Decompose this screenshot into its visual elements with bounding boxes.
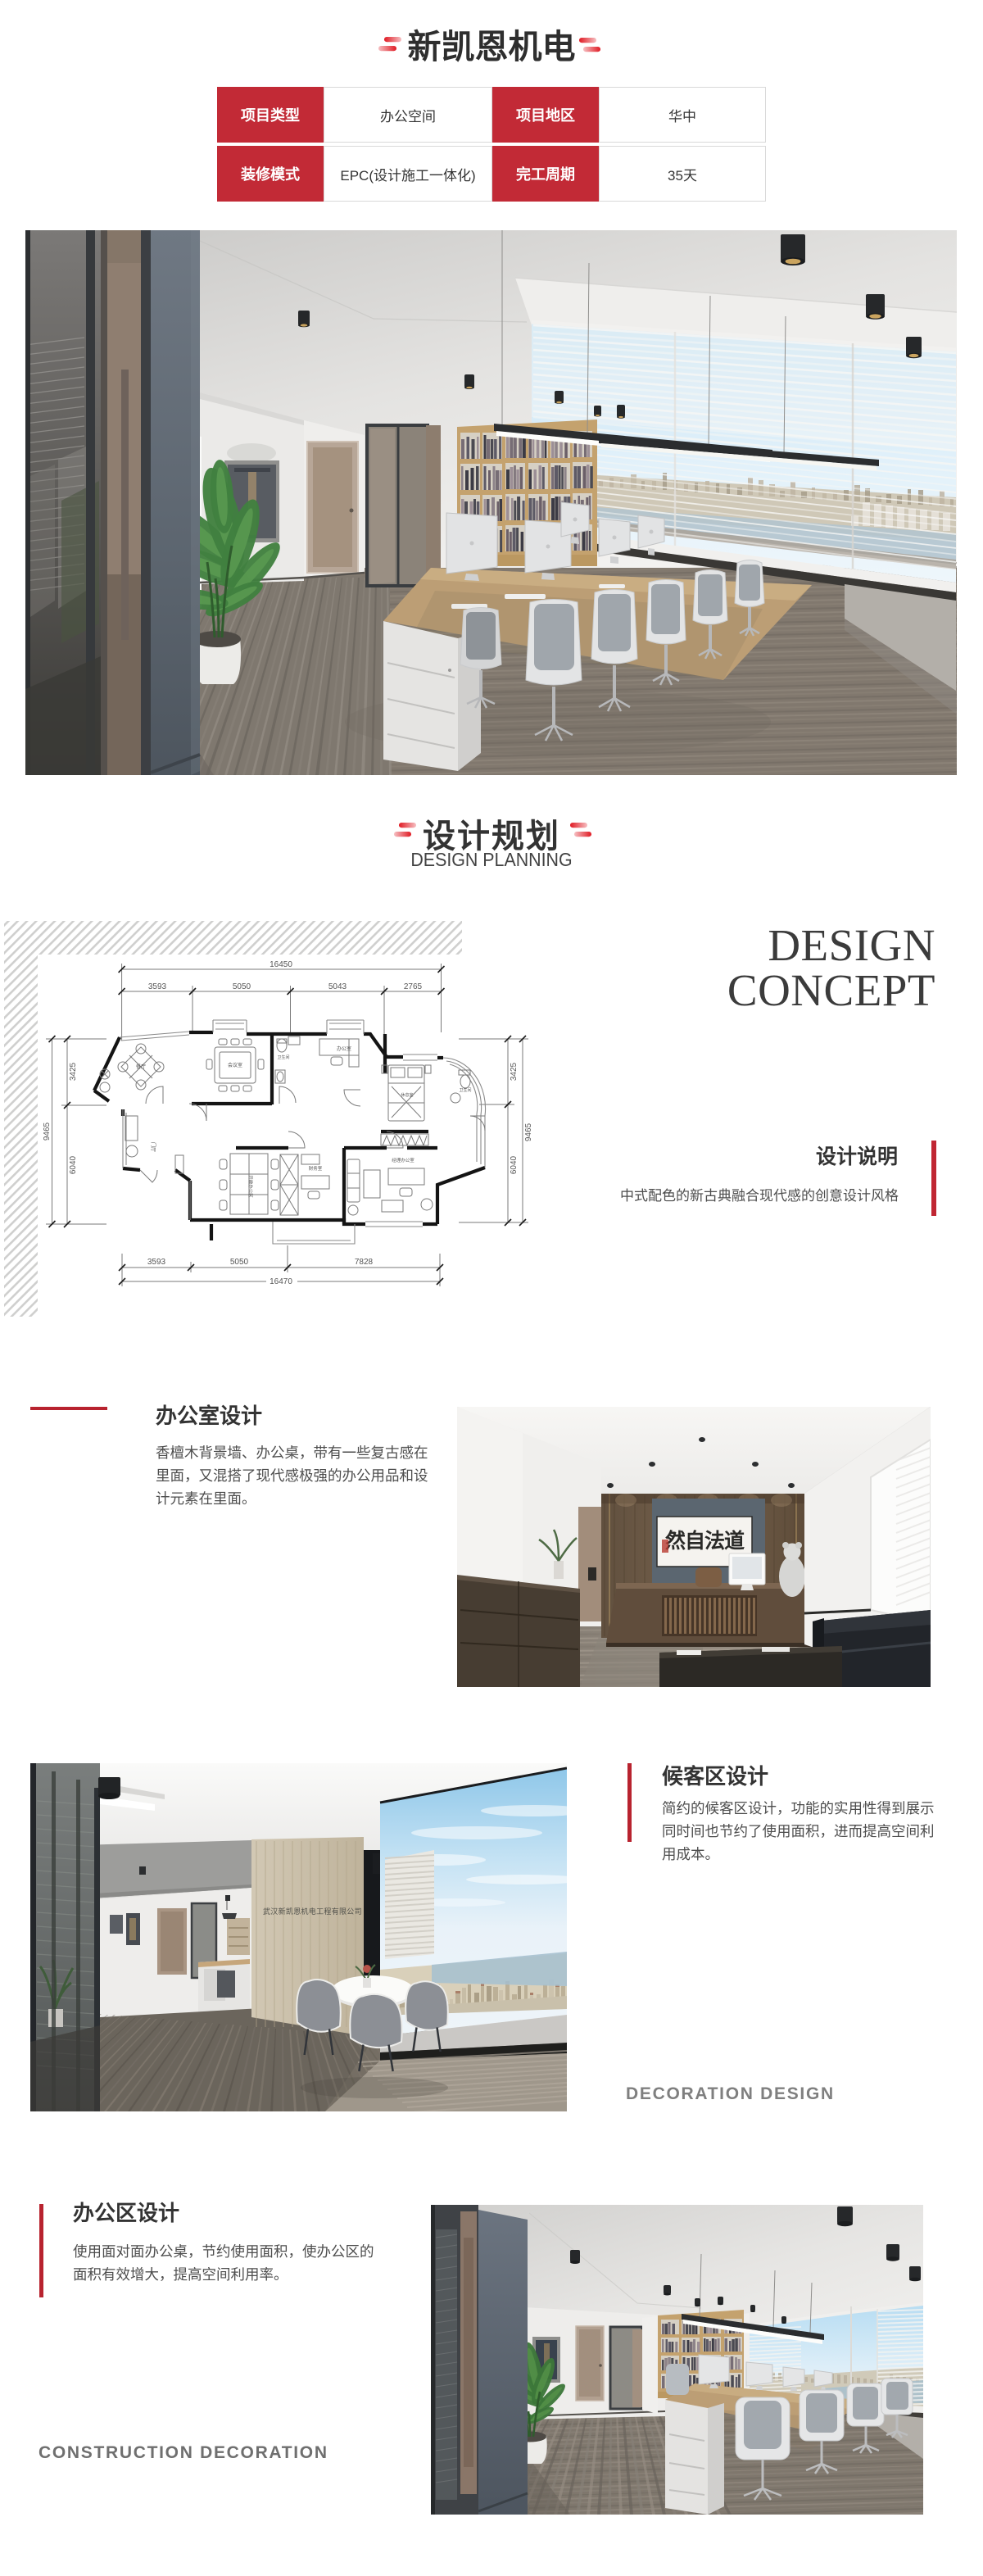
svg-text:16450: 16450 (270, 960, 292, 969)
svg-text:然自法道: 然自法道 (665, 1529, 745, 1553)
svg-text:6040: 6040 (69, 1155, 78, 1174)
svg-text:3593: 3593 (148, 982, 167, 991)
svg-text:5050: 5050 (233, 982, 251, 991)
svg-text:经理办公室: 经理办公室 (392, 1157, 414, 1163)
svg-text:16470: 16470 (270, 1277, 292, 1286)
svg-text:9465: 9465 (43, 1122, 52, 1141)
svg-text:5050: 5050 (230, 1258, 249, 1267)
svg-text:开敞办公区: 开敞办公区 (247, 1175, 254, 1198)
svg-text:餐厅: 餐厅 (136, 1064, 146, 1070)
svg-text:休息室: 休息室 (401, 1092, 413, 1098)
svg-text:3425: 3425 (69, 1062, 78, 1081)
svg-text:武汉新凯恩机电工程有限公司: 武汉新凯恩机电工程有限公司 (263, 1907, 362, 1916)
svg-text:门厅: 门厅 (150, 1142, 156, 1152)
svg-text:6040: 6040 (510, 1155, 519, 1174)
svg-text:2765: 2765 (404, 982, 423, 991)
svg-text:卫生间: 卫生间 (459, 1087, 471, 1093)
svg-text:财务室: 财务室 (309, 1165, 323, 1172)
svg-text:办公室: 办公室 (337, 1045, 351, 1052)
svg-text:7828: 7828 (355, 1258, 374, 1267)
svg-text:5043: 5043 (328, 982, 347, 991)
svg-text:3593: 3593 (147, 1258, 166, 1267)
svg-text:9465: 9465 (524, 1122, 533, 1141)
svg-text:卫生间: 卫生间 (277, 1054, 289, 1060)
svg-text:3425: 3425 (510, 1062, 519, 1081)
svg-text:会议室: 会议室 (228, 1062, 242, 1068)
